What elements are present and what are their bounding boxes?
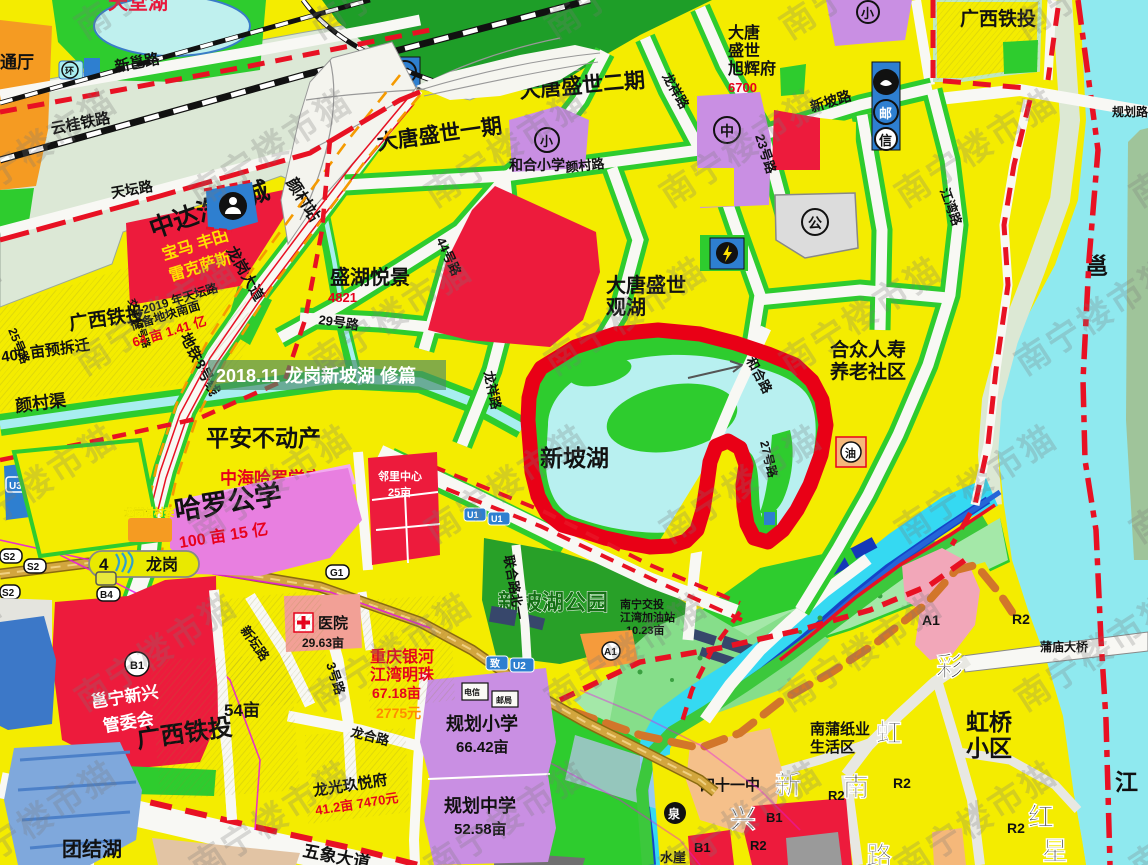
svg-text:S2: S2: [2, 588, 15, 599]
svg-text:R2: R2: [828, 788, 845, 803]
svg-text:邮局: 邮局: [496, 695, 512, 705]
svg-text:电信: 电信: [464, 687, 480, 697]
svg-text:规划小学: 规划小学: [446, 713, 518, 734]
svg-text:S2: S2: [27, 562, 40, 573]
svg-text:小: 小: [861, 6, 874, 21]
svg-text:南蒲纸业: 南蒲纸业: [810, 720, 870, 738]
svg-text:彩: 彩: [936, 652, 963, 682]
svg-text:通厅: 通厅: [0, 53, 34, 72]
svg-text:4821: 4821: [328, 290, 357, 305]
svg-text:规划路: 规划路: [1112, 104, 1148, 119]
svg-text:环: 环: [65, 66, 74, 76]
svg-text:邻里中心: 邻里中心: [377, 469, 422, 483]
svg-text:虹: 虹: [876, 718, 902, 748]
svg-text:泉: 泉: [668, 806, 681, 821]
svg-text:R2: R2: [893, 775, 911, 791]
svg-text:盛世: 盛世: [728, 41, 760, 60]
svg-text:S2: S2: [3, 552, 16, 563]
svg-text:25亩: 25亩: [388, 485, 411, 499]
svg-text:南: 南: [843, 772, 869, 802]
svg-text:团结湖: 团结湖: [62, 837, 122, 861]
svg-text:4: 4: [99, 555, 109, 574]
svg-text:6700: 6700: [728, 80, 757, 95]
svg-text:邮: 邮: [879, 106, 892, 121]
svg-text:R2: R2: [750, 838, 767, 853]
svg-text:66.42亩: 66.42亩: [456, 738, 509, 756]
svg-text:U2: U2: [513, 661, 526, 672]
svg-text:养老社区: 养老社区: [829, 360, 906, 383]
svg-text:G1: G1: [330, 568, 344, 579]
svg-text:生活区: 生活区: [810, 738, 855, 756]
svg-text:R2: R2: [1012, 611, 1030, 627]
svg-text:龙岗村村委: 龙岗村村委: [123, 506, 175, 519]
svg-text:信: 信: [879, 133, 892, 148]
svg-text:R2: R2: [1007, 820, 1025, 836]
svg-text:江: 江: [1115, 769, 1138, 795]
svg-text:虹桥: 虹桥: [966, 709, 1013, 735]
svg-text:龙岗: 龙岗: [145, 555, 178, 574]
svg-text:星: 星: [1042, 836, 1068, 865]
svg-text:油: 油: [845, 446, 856, 460]
svg-text:致: 致: [490, 657, 501, 670]
svg-text:路: 路: [866, 841, 893, 865]
svg-text:公: 公: [808, 215, 822, 231]
svg-text:旭辉府: 旭辉府: [727, 59, 776, 78]
svg-text:大唐: 大唐: [728, 23, 760, 42]
svg-text:小区: 小区: [966, 735, 1012, 761]
svg-text:盛湖悦景: 盛湖悦景: [330, 265, 410, 289]
svg-text:B4: B4: [100, 590, 113, 601]
